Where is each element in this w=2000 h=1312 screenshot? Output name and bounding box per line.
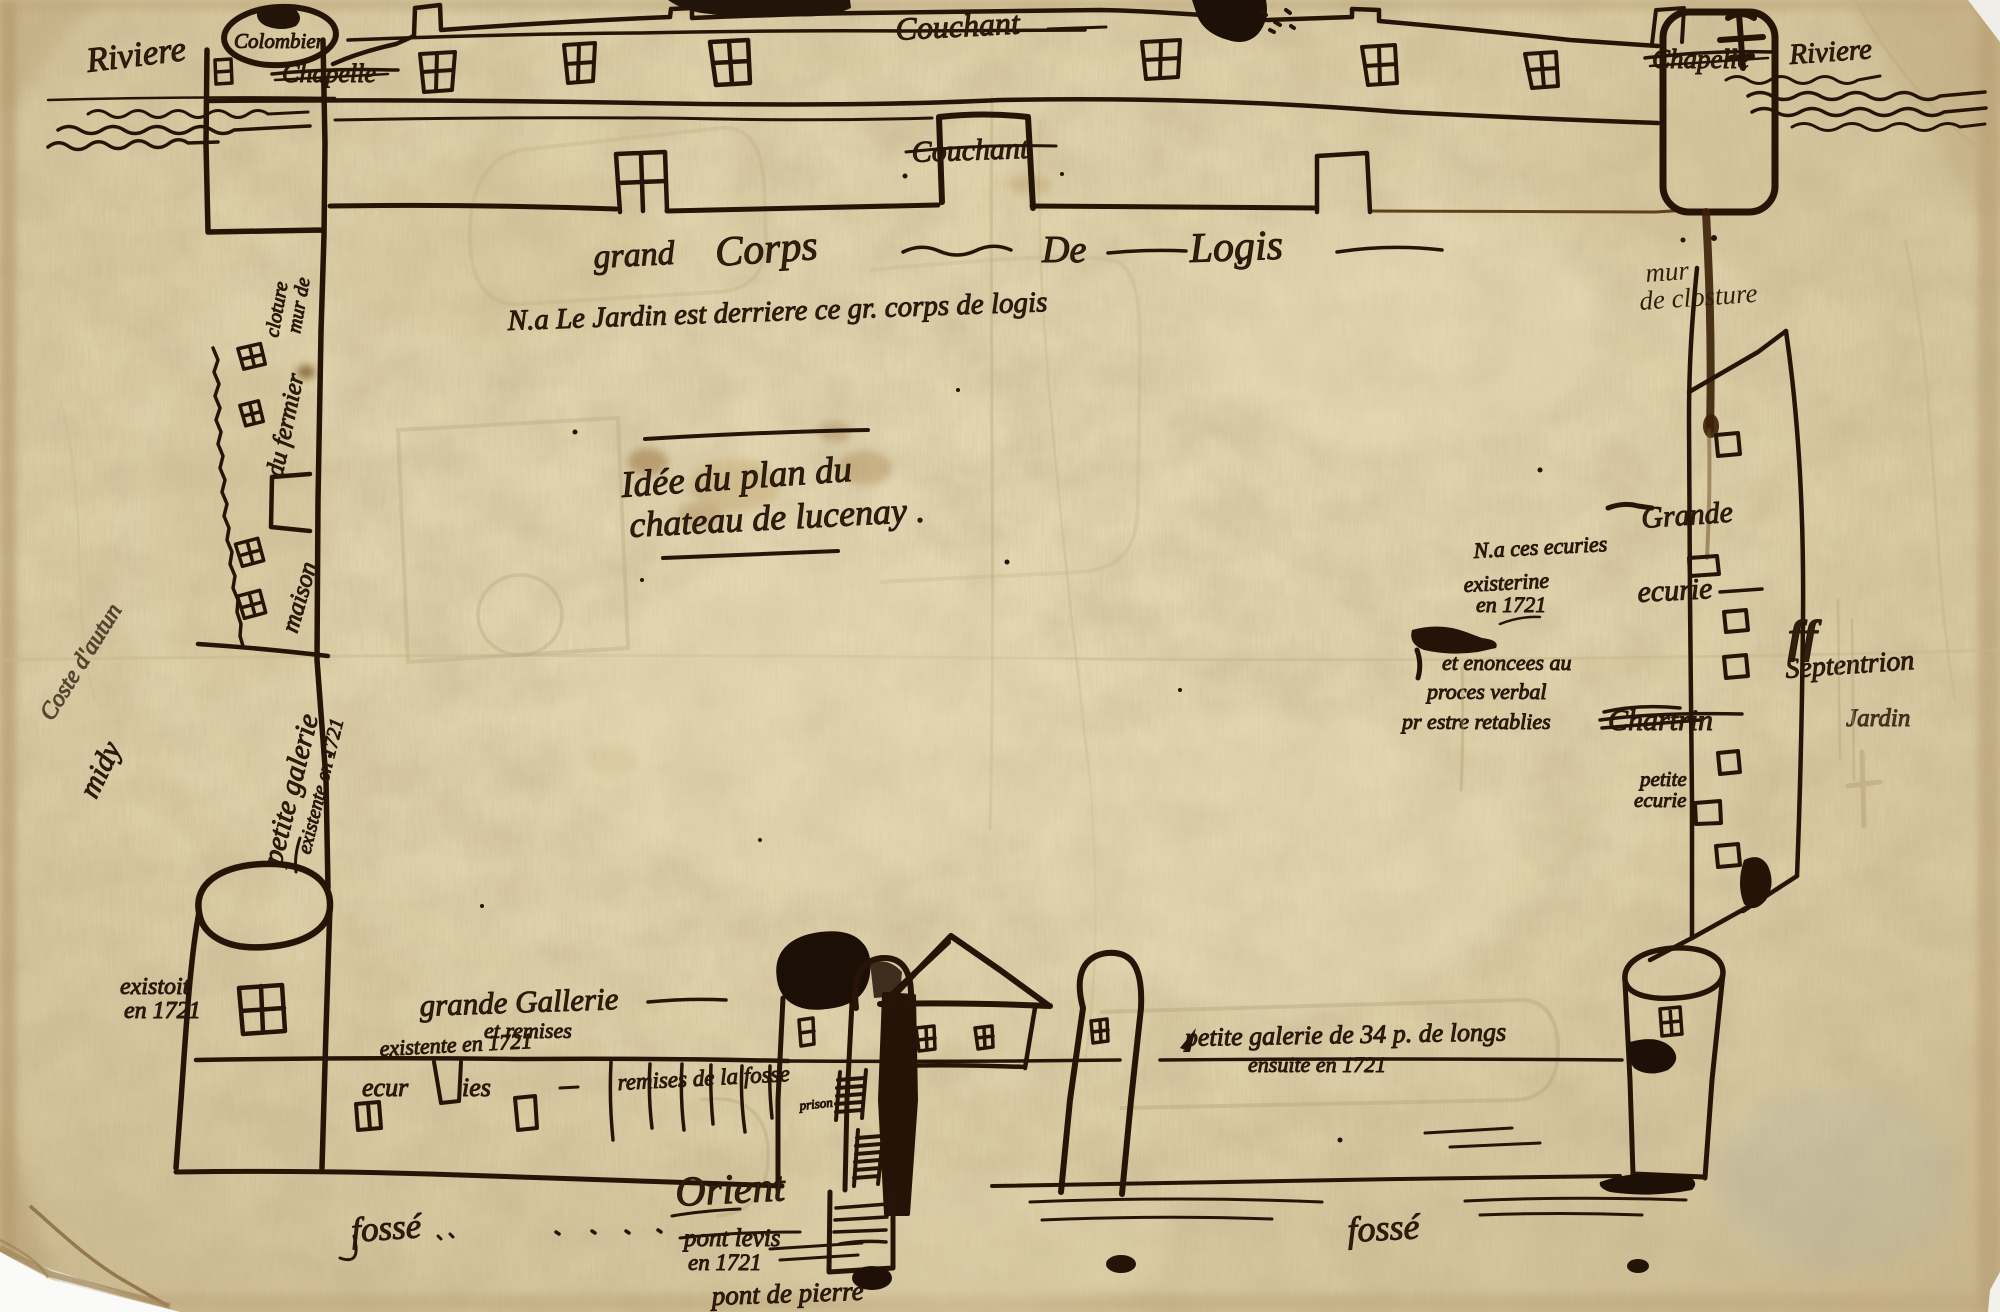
- svg-text:Colombier: Colombier: [234, 29, 325, 53]
- svg-text:en 1721: en 1721: [688, 1250, 761, 1275]
- svg-text:grand: grand: [592, 235, 676, 276]
- svg-text:Grande: Grande: [1640, 496, 1734, 535]
- svg-text:Corps: Corps: [713, 223, 819, 276]
- svg-text:ecurie: ecurie: [1634, 788, 1686, 812]
- svg-text:pont de pierre: pont de pierre: [709, 1276, 864, 1311]
- svg-text:fossé: fossé: [350, 1206, 424, 1250]
- svg-text:grande Gallerie: grande Gallerie: [419, 981, 619, 1023]
- svg-text:en 1721: en 1721: [124, 998, 201, 1024]
- svg-text:Logis: Logis: [1188, 223, 1284, 272]
- svg-text:ecur: ecur: [362, 1073, 409, 1102]
- svg-text:en 1721: en 1721: [1476, 592, 1546, 617]
- svg-text:fossé: fossé: [1346, 1206, 1422, 1250]
- svg-text:pr estre retablies: pr estre retablies: [1400, 709, 1551, 734]
- svg-text:proces verbal: proces verbal: [1425, 679, 1547, 704]
- svg-text:pont levis: pont levis: [682, 1225, 781, 1252]
- svg-text:ecurie: ecurie: [1637, 572, 1714, 609]
- svg-text:existoit: existoit: [120, 974, 191, 1000]
- svg-text:Couchant: Couchant: [894, 4, 1021, 47]
- svg-text:Riviere: Riviere: [1787, 33, 1873, 71]
- svg-text:Jardin: Jardin: [1846, 705, 1910, 732]
- svg-text:petite galerie de 34 p. de lon: petite galerie de 34 p. de longs: [1183, 1017, 1507, 1052]
- svg-text:ies: ies: [462, 1073, 491, 1102]
- svg-text:ensuite en 1721: ensuite en 1721: [1248, 1052, 1386, 1077]
- svg-text:De: De: [1041, 229, 1086, 271]
